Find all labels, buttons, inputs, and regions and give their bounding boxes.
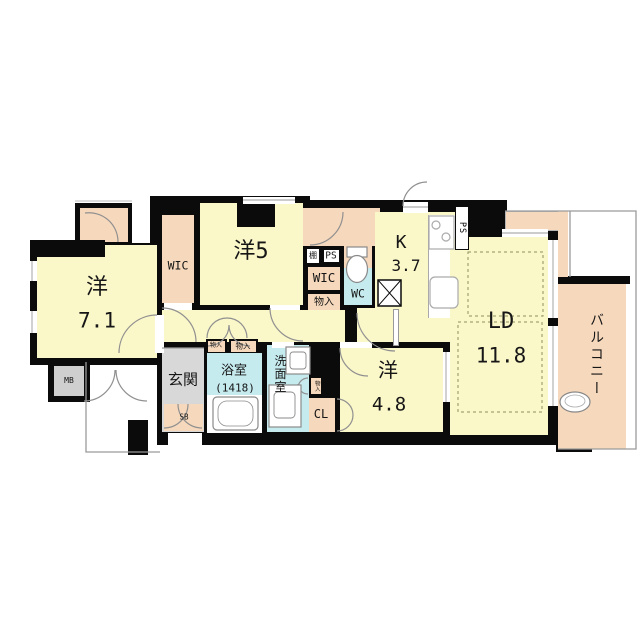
shoe-box-label: SB [179, 413, 188, 421]
shelf-label: 棚 [309, 252, 317, 260]
wall-stub [343, 305, 357, 343]
bedroom2-label: 洋5 [233, 241, 268, 263]
bedroom1-size: 7.1 [78, 311, 116, 332]
meter-box-label: MB [64, 377, 74, 385]
door-leaf-living [393, 309, 399, 346]
wall [467, 200, 507, 236]
storage-wash-label: 物入 [313, 381, 319, 392]
wic-center-label: WIC [313, 272, 336, 285]
entrance-door-gap [168, 433, 202, 445]
window [27, 311, 37, 333]
toilet-label: WC [351, 288, 365, 300]
kitchen-label: K [396, 234, 407, 252]
bedroom1 [37, 245, 157, 358]
pipe-space-kitchen-label: PS [457, 222, 467, 234]
window [548, 326, 558, 406]
wall-notch [30, 240, 105, 257]
balcony-label: バルコニー [589, 313, 603, 398]
storage-hall-label: 物入 [236, 342, 251, 350]
window [502, 229, 548, 237]
bedroom1-label: 洋 [86, 277, 108, 299]
window [243, 197, 295, 204]
door-gap-bedroom1 [155, 315, 164, 353]
door-gap-kitchen [403, 202, 428, 213]
balcony-wall [556, 276, 630, 284]
passage [357, 308, 395, 342]
toilet-room-upper [344, 245, 372, 268]
door-gap-bedroom3 [340, 342, 372, 348]
storage-center-label: 物入 [314, 298, 334, 308]
door-gap-washroom [272, 342, 294, 348]
closet-top [80, 208, 128, 242]
bath-size: (1418) [215, 383, 255, 394]
door-gap-bedroom2 [270, 305, 300, 310]
wall [128, 420, 148, 455]
closet-label: CL [314, 408, 328, 420]
front-door-arcs [84, 370, 147, 401]
door-gap-wic-left [164, 303, 192, 310]
corridor [162, 310, 345, 342]
bedroom3-size: 4.8 [372, 396, 406, 415]
bath-label: 浴室 [221, 365, 247, 378]
window [548, 240, 558, 318]
entrance-label: 玄関 [168, 373, 198, 388]
floor-plan: 洋 7.1 WIC 洋5 棚 PS WIC 物入 WC K 3.7 PS LD … [0, 0, 640, 640]
storage-hall-small-label: 物入 [210, 343, 222, 349]
living-label: LD [488, 311, 515, 333]
pipe-space-kitchen-box: PS [455, 206, 469, 250]
washroom-label: 洗面室 [274, 355, 286, 394]
sliding-door-gap [443, 352, 450, 402]
kitchen-size: 3.7 [392, 258, 421, 274]
bedroom3-label: 洋 [378, 360, 398, 380]
bathroom-lower [207, 395, 262, 433]
pipe-space-center-label: PS [325, 251, 336, 261]
common-corridor-line [86, 362, 160, 452]
window [27, 261, 37, 281]
living-dining [450, 237, 548, 435]
wic-left-label: WIC [168, 260, 189, 272]
living-size: 11.8 [476, 346, 527, 367]
upper-hallway [303, 208, 380, 246]
wall-notch [237, 203, 275, 227]
balcony-corner [558, 211, 568, 277]
